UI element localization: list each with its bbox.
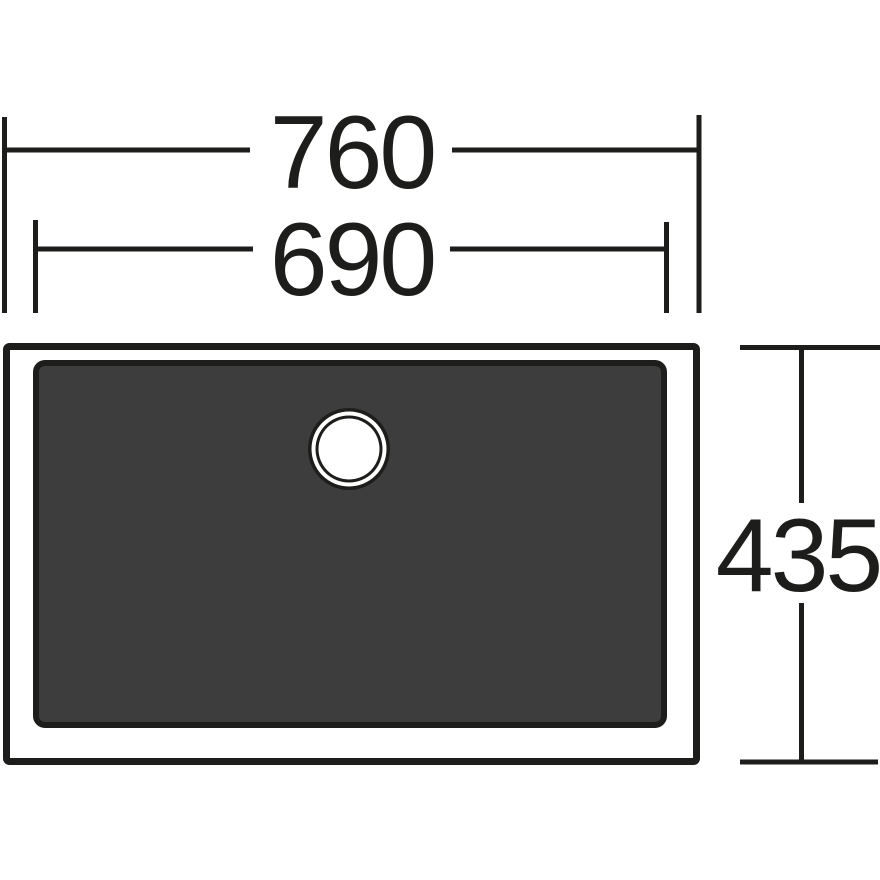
dimension-inner-width-label: 690	[270, 202, 435, 318]
technical-drawing-canvas: 760 690 435	[0, 0, 880, 880]
dimension-depth: 435	[716, 348, 880, 763]
drain-center	[319, 419, 380, 480]
drain-hole-icon	[308, 408, 390, 490]
dimension-depth-label: 435	[716, 498, 880, 614]
drawing-stage: 760 690 435	[0, 0, 880, 880]
dimension-outer-width-label: 760	[270, 95, 435, 211]
sink	[7, 347, 697, 762]
dimension-inner-width: 690	[33, 202, 667, 318]
